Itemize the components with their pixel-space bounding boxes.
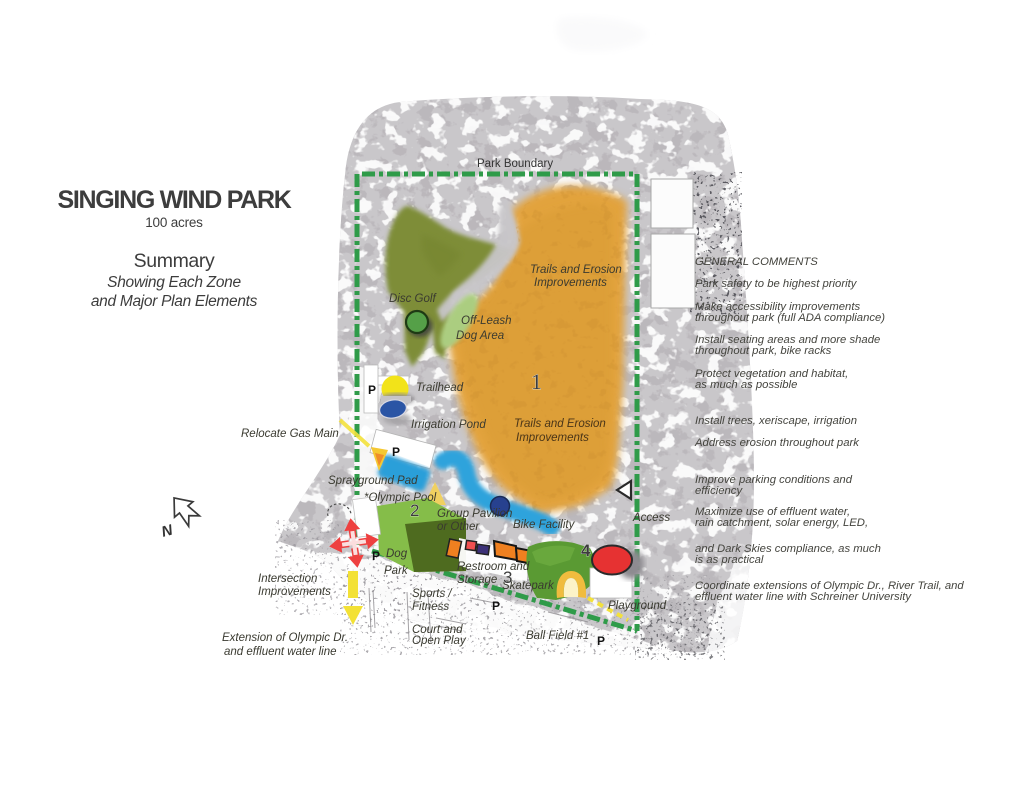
svg-text:Bike Facility: Bike Facility <box>513 519 576 531</box>
svg-text:is as practical: is as practical <box>695 554 764 566</box>
svg-text:efficiency: efficiency <box>695 485 743 497</box>
svg-text:Disc Golf: Disc Golf <box>389 293 437 305</box>
svg-text:P: P <box>597 634 605 648</box>
svg-text:N: N <box>160 521 176 541</box>
svg-text:and Major Plan Elements: and Major Plan Elements <box>91 293 258 310</box>
svg-text:Trails and Erosion: Trails and Erosion <box>530 264 622 276</box>
svg-text:GENERAL COMMENTS: GENERAL COMMENTS <box>695 256 818 268</box>
svg-text:Park safety to be highest prio: Park safety to be highest priority <box>695 278 858 290</box>
svg-text:Off-Leash: Off-Leash <box>461 315 512 327</box>
svg-text:Park: Park <box>384 565 409 577</box>
svg-text:Open Play: Open Play <box>412 635 467 647</box>
svg-text:Sprayground Pad: Sprayground Pad <box>328 475 418 487</box>
svg-text:Access: Access <box>632 512 670 524</box>
svg-text:P: P <box>368 383 376 397</box>
svg-text:Playground: Playground <box>608 600 667 612</box>
svg-text:and effluent water line: and effluent water line <box>224 646 337 658</box>
svg-text:Park Boundary: Park Boundary <box>477 158 553 170</box>
svg-text:Improvements: Improvements <box>534 277 607 289</box>
svg-text:100 acres: 100 acres <box>145 215 203 230</box>
svg-text:P: P <box>372 549 380 563</box>
svg-text:as much as possible: as much as possible <box>695 379 797 391</box>
svg-text:P: P <box>392 445 400 459</box>
svg-text:SINGING WIND PARK: SINGING WIND PARK <box>58 186 292 214</box>
svg-text:Restroom and: Restroom and <box>457 561 530 573</box>
svg-text:Extension of Olympic Dr.: Extension of Olympic Dr. <box>222 632 348 644</box>
svg-text:Improvements: Improvements <box>516 432 589 444</box>
svg-text:rain catchment, solar energy,: rain catchment, solar energy, LED, <box>695 517 868 529</box>
svg-text:Storage: Storage <box>457 574 497 586</box>
svg-text:throughout park (full ADA comp: throughout park (full ADA compliance) <box>695 312 885 324</box>
svg-text:Improvements: Improvements <box>258 586 331 598</box>
svg-text:throughout park, bike racks: throughout park, bike racks <box>695 345 832 357</box>
svg-text:Summary: Summary <box>134 250 215 272</box>
svg-text:2: 2 <box>410 501 419 520</box>
svg-text:Irrigation Pond: Irrigation Pond <box>411 419 486 431</box>
svg-text:Ball Field #1: Ball Field #1 <box>526 630 589 642</box>
svg-text:*Olympic Pool: *Olympic Pool <box>364 492 437 504</box>
svg-text:Trailhead: Trailhead <box>416 382 464 394</box>
svg-text:Intersection: Intersection <box>258 573 317 585</box>
svg-text:Showing Each Zone: Showing Each Zone <box>107 274 241 291</box>
svg-text:Fitness: Fitness <box>412 601 449 613</box>
svg-text:Sports /: Sports / <box>412 588 453 600</box>
svg-text:1: 1 <box>531 369 542 394</box>
svg-text:Install trees, xeriscape, irri: Install trees, xeriscape, irrigation <box>695 415 857 427</box>
svg-text:Address erosion throughout par: Address erosion throughout park <box>694 437 860 449</box>
svg-text:P: P <box>492 599 500 613</box>
svg-text:Dog: Dog <box>386 548 408 560</box>
svg-text:Dog Area: Dog Area <box>456 330 504 342</box>
svg-text:Relocate Gas Main: Relocate Gas Main <box>241 428 339 440</box>
svg-text:4: 4 <box>581 541 591 560</box>
svg-text:Trails and Erosion: Trails and Erosion <box>514 418 606 430</box>
svg-text:effluent water line with Schre: effluent water line with Schreiner Unive… <box>695 591 912 603</box>
svg-text:3: 3 <box>503 568 512 587</box>
svg-text:or Other: or Other <box>437 521 480 533</box>
svg-text:Group Pavilion: Group Pavilion <box>437 508 512 520</box>
